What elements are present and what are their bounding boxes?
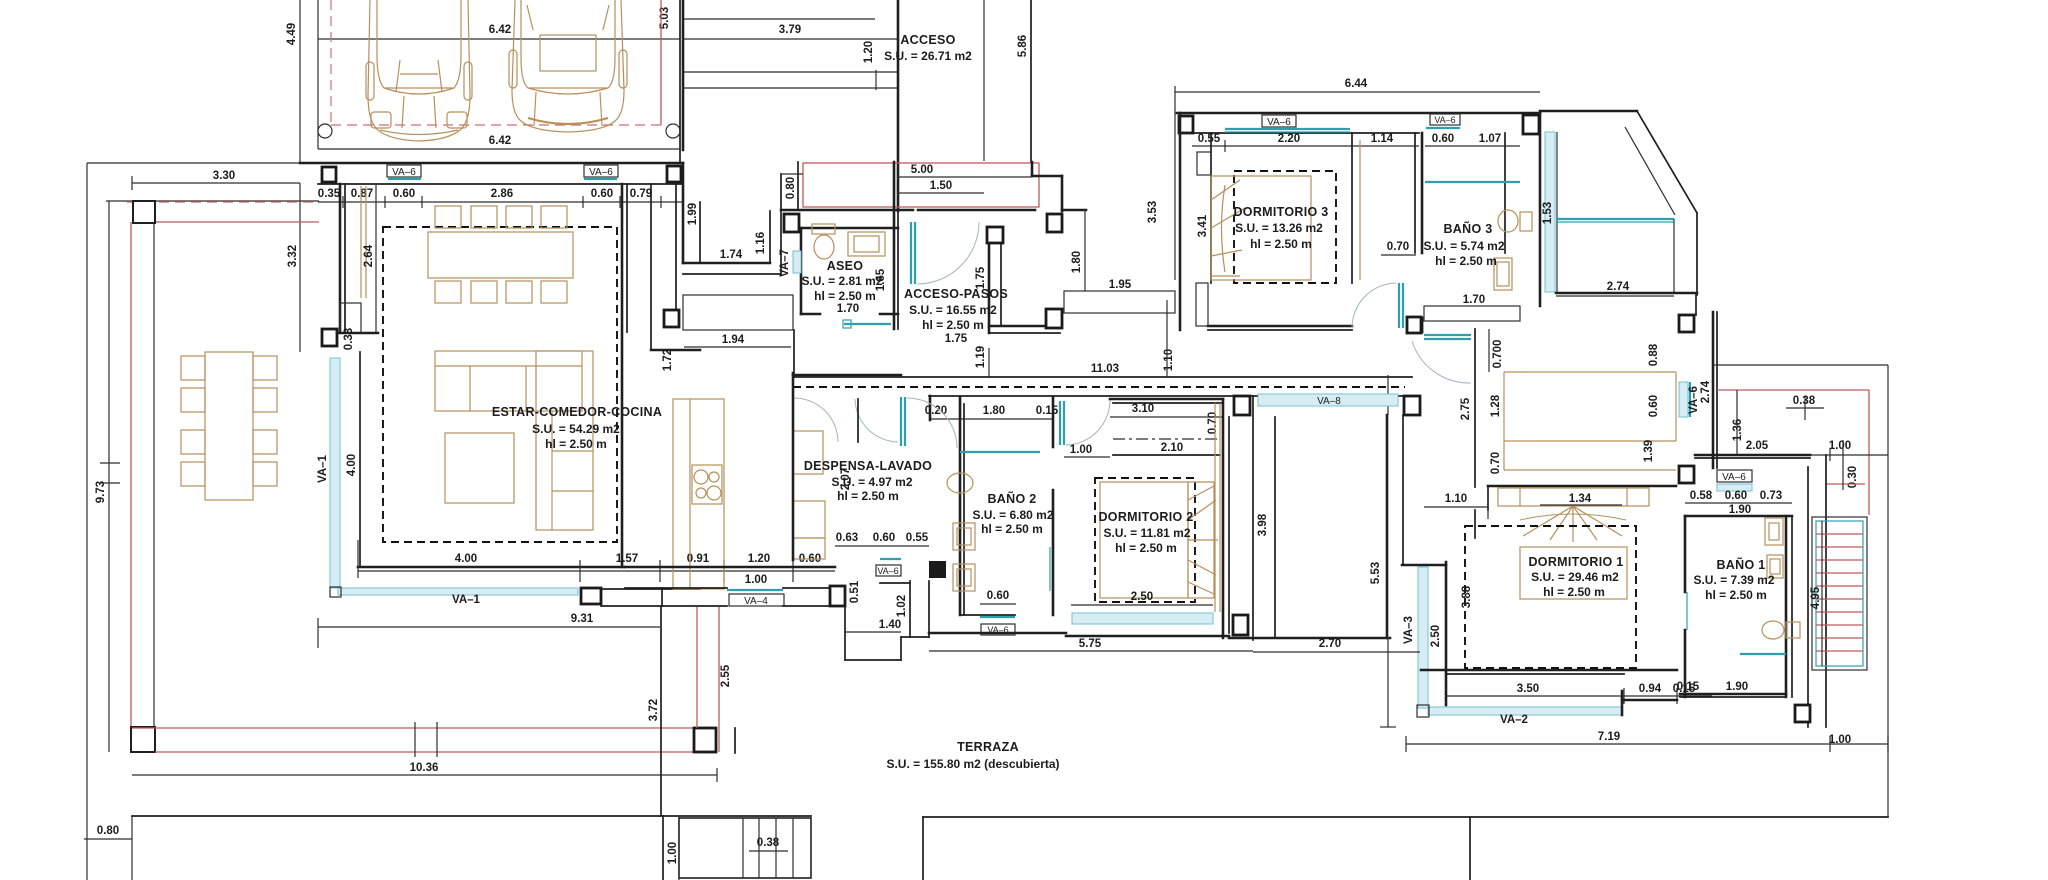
svg-text:6.44: 6.44 bbox=[1345, 78, 1368, 90]
svg-text:hl = 2.50 m: hl = 2.50 m bbox=[814, 289, 876, 303]
svg-text:2.20: 2.20 bbox=[1278, 133, 1300, 145]
svg-text:1.19: 1.19 bbox=[975, 346, 987, 368]
svg-text:2.86: 2.86 bbox=[491, 188, 513, 200]
svg-text:0.51: 0.51 bbox=[849, 580, 861, 603]
svg-text:TERRAZA: TERRAZA bbox=[957, 740, 1019, 754]
svg-text:BAÑO 1: BAÑO 1 bbox=[1716, 557, 1765, 572]
svg-text:0.55: 0.55 bbox=[906, 532, 929, 544]
svg-text:S.U. = 54.29 m2: S.U. = 54.29 m2 bbox=[532, 422, 620, 436]
svg-text:2.50: 2.50 bbox=[1430, 625, 1442, 647]
svg-text:3.79: 3.79 bbox=[779, 24, 801, 36]
svg-text:0.15: 0.15 bbox=[1036, 405, 1059, 417]
svg-text:1.94: 1.94 bbox=[722, 334, 745, 346]
svg-text:hl = 2.50 m: hl = 2.50 m bbox=[981, 522, 1043, 536]
svg-text:2.05: 2.05 bbox=[1746, 440, 1769, 452]
svg-text:hl = 2.50 m: hl = 2.50 m bbox=[1543, 585, 1605, 599]
svg-text:VA–6: VA–6 bbox=[1688, 386, 1700, 414]
svg-text:VA–7: VA–7 bbox=[779, 249, 791, 277]
svg-text:VA–1: VA–1 bbox=[317, 454, 329, 483]
svg-text:1.14: 1.14 bbox=[1371, 133, 1394, 145]
svg-text:0.33: 0.33 bbox=[343, 328, 355, 350]
svg-text:1.75: 1.75 bbox=[975, 266, 987, 289]
svg-text:1.16: 1.16 bbox=[755, 232, 767, 254]
svg-text:VA–6: VA–6 bbox=[589, 167, 613, 178]
svg-text:VA–6: VA–6 bbox=[1722, 472, 1746, 483]
svg-text:0.60: 0.60 bbox=[1432, 133, 1454, 145]
svg-text:1.90: 1.90 bbox=[1726, 681, 1748, 693]
svg-text:BAÑO 3: BAÑO 3 bbox=[1443, 221, 1492, 236]
svg-text:1.00: 1.00 bbox=[667, 842, 679, 864]
svg-text:BAÑO 2: BAÑO 2 bbox=[987, 491, 1036, 506]
svg-text:1.65: 1.65 bbox=[875, 268, 887, 291]
svg-text:1.75: 1.75 bbox=[945, 333, 968, 345]
svg-text:1.00: 1.00 bbox=[1829, 734, 1851, 746]
svg-text:S.U. = 13.26 m2: S.U. = 13.26 m2 bbox=[1235, 221, 1323, 235]
svg-text:VA–6: VA–6 bbox=[392, 167, 416, 178]
svg-text:VA–6: VA–6 bbox=[1434, 115, 1455, 125]
svg-text:0.60: 0.60 bbox=[1648, 395, 1660, 417]
svg-text:2.50: 2.50 bbox=[1131, 591, 1153, 603]
svg-text:1.57: 1.57 bbox=[616, 553, 638, 565]
svg-text:0.60: 0.60 bbox=[591, 188, 613, 200]
svg-text:S.U. = 6.80 m2: S.U. = 6.80 m2 bbox=[972, 508, 1053, 522]
svg-text:0.94: 0.94 bbox=[1639, 683, 1662, 695]
svg-text:2.74: 2.74 bbox=[1700, 380, 1712, 403]
svg-text:VA–4: VA–4 bbox=[744, 596, 768, 607]
svg-text:3.10: 3.10 bbox=[1132, 403, 1154, 415]
svg-text:0.87: 0.87 bbox=[351, 188, 373, 200]
svg-text:S.U. = 29.46 m2: S.U. = 29.46 m2 bbox=[1531, 570, 1619, 584]
svg-text:1.02: 1.02 bbox=[896, 595, 908, 617]
svg-text:1.70: 1.70 bbox=[1463, 294, 1485, 306]
svg-text:0.60: 0.60 bbox=[987, 590, 1009, 602]
svg-text:DORMITORIO 2: DORMITORIO 2 bbox=[1098, 510, 1193, 524]
svg-text:VA–1: VA–1 bbox=[452, 594, 481, 606]
svg-text:5.53: 5.53 bbox=[1370, 562, 1382, 584]
svg-text:1.80: 1.80 bbox=[1071, 251, 1083, 273]
svg-text:VA–3: VA–3 bbox=[1403, 616, 1415, 644]
svg-text:5.00: 5.00 bbox=[911, 164, 933, 176]
svg-text:4.00: 4.00 bbox=[455, 553, 477, 565]
svg-text:1.39: 1.39 bbox=[1643, 440, 1655, 462]
svg-text:3.53: 3.53 bbox=[1147, 201, 1159, 223]
svg-text:3.98: 3.98 bbox=[1257, 513, 1269, 536]
svg-text:6.42: 6.42 bbox=[489, 135, 511, 147]
svg-text:0.55: 0.55 bbox=[1198, 133, 1221, 145]
svg-text:1.99: 1.99 bbox=[687, 203, 699, 225]
svg-text:1.80: 1.80 bbox=[983, 405, 1005, 417]
svg-text:2.10: 2.10 bbox=[1161, 442, 1183, 454]
svg-text:1.90: 1.90 bbox=[1729, 504, 1751, 516]
svg-text:3.88: 3.88 bbox=[1461, 585, 1473, 608]
svg-text:9.73: 9.73 bbox=[95, 481, 107, 503]
svg-text:0.63: 0.63 bbox=[836, 532, 858, 544]
svg-text:1.50: 1.50 bbox=[930, 180, 952, 192]
svg-text:1.53: 1.53 bbox=[1542, 202, 1554, 224]
svg-text:hl = 2.50 m: hl = 2.50 m bbox=[1435, 254, 1497, 268]
svg-text:1.34: 1.34 bbox=[1569, 493, 1592, 505]
svg-text:1.10: 1.10 bbox=[1445, 493, 1467, 505]
svg-text:1.10: 1.10 bbox=[1163, 349, 1175, 371]
svg-text:S.U. = 11.81 m2: S.U. = 11.81 m2 bbox=[1103, 526, 1190, 540]
svg-text:3.72: 3.72 bbox=[648, 699, 660, 721]
svg-text:DORMITORIO 3: DORMITORIO 3 bbox=[1233, 205, 1328, 219]
svg-text:hl = 2.50 m: hl = 2.50 m bbox=[922, 318, 984, 332]
svg-text:hl = 2.50 m: hl = 2.50 m bbox=[1115, 541, 1177, 555]
svg-text:4.00: 4.00 bbox=[346, 454, 358, 476]
svg-text:10.36: 10.36 bbox=[410, 762, 439, 774]
svg-text:4.49: 4.49 bbox=[286, 23, 298, 45]
svg-text:0.35: 0.35 bbox=[318, 188, 341, 200]
svg-text:1.95: 1.95 bbox=[1109, 279, 1132, 291]
svg-text:S.U. = 26.71 m2: S.U. = 26.71 m2 bbox=[884, 49, 972, 63]
svg-text:S.U. = 155.80 m2 (descubierta): S.U. = 155.80 m2 (descubierta) bbox=[886, 757, 1059, 771]
svg-text:1.70: 1.70 bbox=[837, 303, 859, 315]
svg-text:0.38: 0.38 bbox=[757, 837, 780, 849]
svg-text:0.60: 0.60 bbox=[393, 188, 415, 200]
svg-text:3.50: 3.50 bbox=[1517, 683, 1539, 695]
svg-text:5.75: 5.75 bbox=[1079, 638, 1102, 650]
svg-text:ASEO: ASEO bbox=[827, 259, 864, 273]
svg-text:ESTAR-COMEDOR-COCINA: ESTAR-COMEDOR-COCINA bbox=[492, 405, 662, 419]
svg-text:ACCESO: ACCESO bbox=[900, 33, 955, 47]
svg-text:1.74: 1.74 bbox=[720, 249, 743, 261]
svg-text:1.00: 1.00 bbox=[1070, 444, 1092, 456]
svg-text:0.88: 0.88 bbox=[1648, 343, 1660, 366]
svg-text:3.41: 3.41 bbox=[1197, 214, 1209, 237]
svg-text:3.32: 3.32 bbox=[287, 245, 299, 267]
svg-text:3.30: 3.30 bbox=[213, 170, 235, 182]
svg-text:0.60: 0.60 bbox=[873, 532, 895, 544]
svg-text:1.07: 1.07 bbox=[1479, 133, 1501, 145]
svg-text:9.31: 9.31 bbox=[571, 613, 594, 625]
svg-text:S.U. = 7.39 m2: S.U. = 7.39 m2 bbox=[1693, 573, 1774, 587]
svg-text:1.72: 1.72 bbox=[662, 349, 674, 371]
svg-text:0.79: 0.79 bbox=[630, 188, 652, 200]
svg-text:VA–2: VA–2 bbox=[1500, 714, 1528, 726]
svg-text:0.60: 0.60 bbox=[1725, 490, 1747, 502]
svg-text:1.40: 1.40 bbox=[879, 619, 901, 631]
svg-text:S.U. = 16.55 m2: S.U. = 16.55 m2 bbox=[909, 303, 997, 317]
svg-text:6.42: 6.42 bbox=[489, 24, 511, 36]
svg-text:hl = 2.50 m: hl = 2.50 m bbox=[1705, 588, 1767, 602]
svg-text:1.20: 1.20 bbox=[863, 41, 875, 63]
svg-text:2.74: 2.74 bbox=[1607, 281, 1630, 293]
svg-text:0.80: 0.80 bbox=[97, 825, 119, 837]
svg-text:ACCESO-PASOS: ACCESO-PASOS bbox=[904, 287, 1008, 301]
svg-text:S.U. = 5.74 m2: S.U. = 5.74 m2 bbox=[1423, 239, 1504, 253]
svg-text:0.80: 0.80 bbox=[785, 177, 797, 199]
svg-text:0.58: 0.58 bbox=[1690, 490, 1713, 502]
svg-text:0.30: 0.30 bbox=[1847, 466, 1859, 488]
svg-text:0.73: 0.73 bbox=[1760, 490, 1782, 502]
svg-text:1.20: 1.20 bbox=[748, 553, 770, 565]
svg-text:1.28: 1.28 bbox=[1490, 394, 1502, 417]
svg-text:DORMITORIO 1: DORMITORIO 1 bbox=[1528, 555, 1623, 569]
svg-text:1.00: 1.00 bbox=[1829, 440, 1851, 452]
svg-text:0.700: 0.700 bbox=[1492, 340, 1504, 369]
svg-text:hl = 2.50 m: hl = 2.50 m bbox=[1250, 237, 1312, 251]
svg-text:hl = 2.50 m: hl = 2.50 m bbox=[545, 437, 607, 451]
svg-text:0.70: 0.70 bbox=[1490, 452, 1502, 474]
svg-text:2.55: 2.55 bbox=[720, 664, 732, 687]
svg-text:2.07: 2.07 bbox=[840, 468, 852, 490]
svg-text:7.19: 7.19 bbox=[1598, 731, 1620, 743]
svg-text:0.70: 0.70 bbox=[1387, 241, 1409, 253]
svg-text:S.U. = 2.81 m2: S.U. = 2.81 m2 bbox=[801, 274, 882, 288]
svg-text:1.36: 1.36 bbox=[1732, 419, 1744, 441]
svg-text:VA–6: VA–6 bbox=[877, 566, 898, 576]
svg-text:11.03: 11.03 bbox=[1091, 363, 1119, 375]
svg-text:2.75: 2.75 bbox=[1460, 397, 1472, 420]
svg-text:0.15: 0.15 bbox=[1677, 681, 1700, 693]
svg-text:0.38: 0.38 bbox=[1793, 395, 1816, 407]
svg-text:0.70: 0.70 bbox=[1207, 412, 1219, 434]
svg-text:VA–8: VA–8 bbox=[1317, 396, 1341, 407]
svg-text:5.86: 5.86 bbox=[1017, 35, 1029, 57]
svg-text:VA–6: VA–6 bbox=[1267, 117, 1291, 128]
svg-text:4.95: 4.95 bbox=[1810, 586, 1822, 609]
svg-text:2.64: 2.64 bbox=[363, 244, 375, 267]
svg-text:DESPENSA-LAVADO: DESPENSA-LAVADO bbox=[804, 459, 932, 473]
svg-text:1.00: 1.00 bbox=[745, 574, 767, 586]
svg-text:2.70: 2.70 bbox=[1319, 638, 1341, 650]
